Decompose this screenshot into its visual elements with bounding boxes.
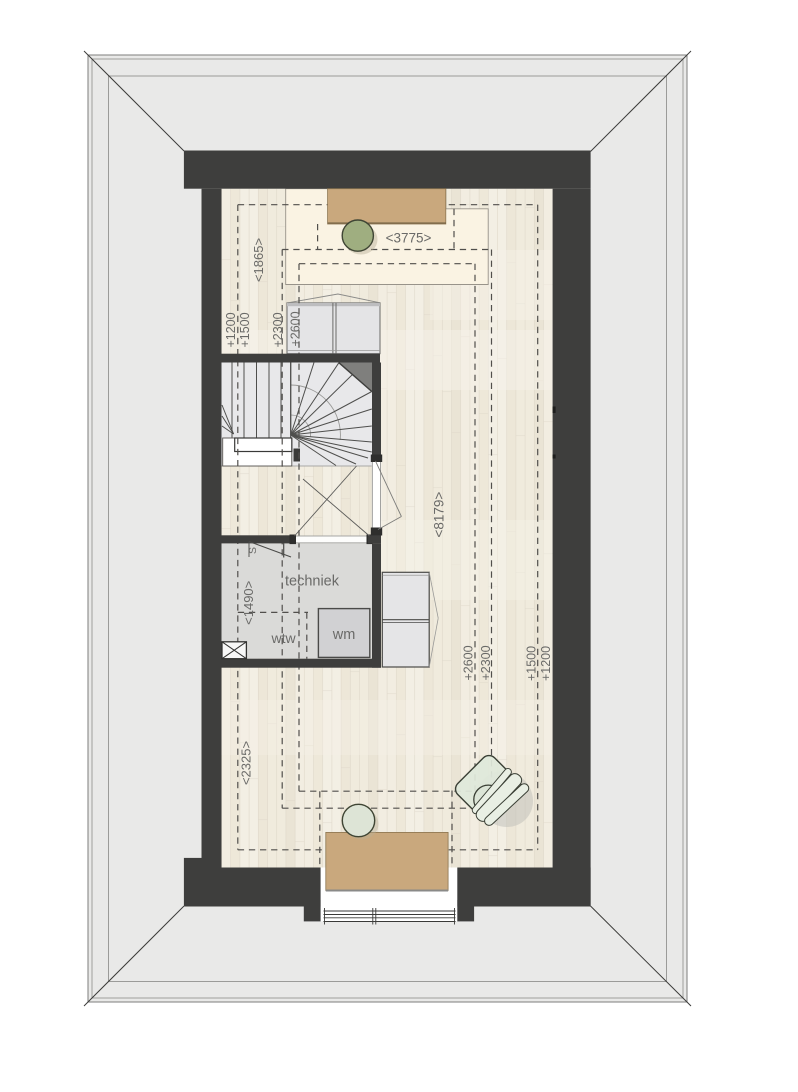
svg-text:<1490>: <1490> [241,581,256,625]
svg-text:+2600: +2600 [462,645,476,680]
svg-text:+1200: +1200 [539,646,553,681]
svg-text:<3775>: <3775> [386,230,432,245]
svg-text:+2300: +2300 [479,645,493,680]
svg-text:+2300: +2300 [271,312,285,347]
svg-text:<8179>: <8179> [432,492,447,538]
svg-text:S: S [247,547,259,554]
svg-text:<1865>: <1865> [251,238,266,282]
svg-text:wm: wm [332,627,356,643]
svg-text:+1500: +1500 [525,646,539,681]
svg-text:+2600: +2600 [289,311,303,346]
svg-text:+1200: +1200 [224,312,238,347]
svg-text:wtw: wtw [271,630,297,646]
svg-text:techniek: techniek [285,574,340,590]
svg-text:<2325>: <2325> [239,741,254,785]
svg-text:+1500: +1500 [238,312,252,347]
